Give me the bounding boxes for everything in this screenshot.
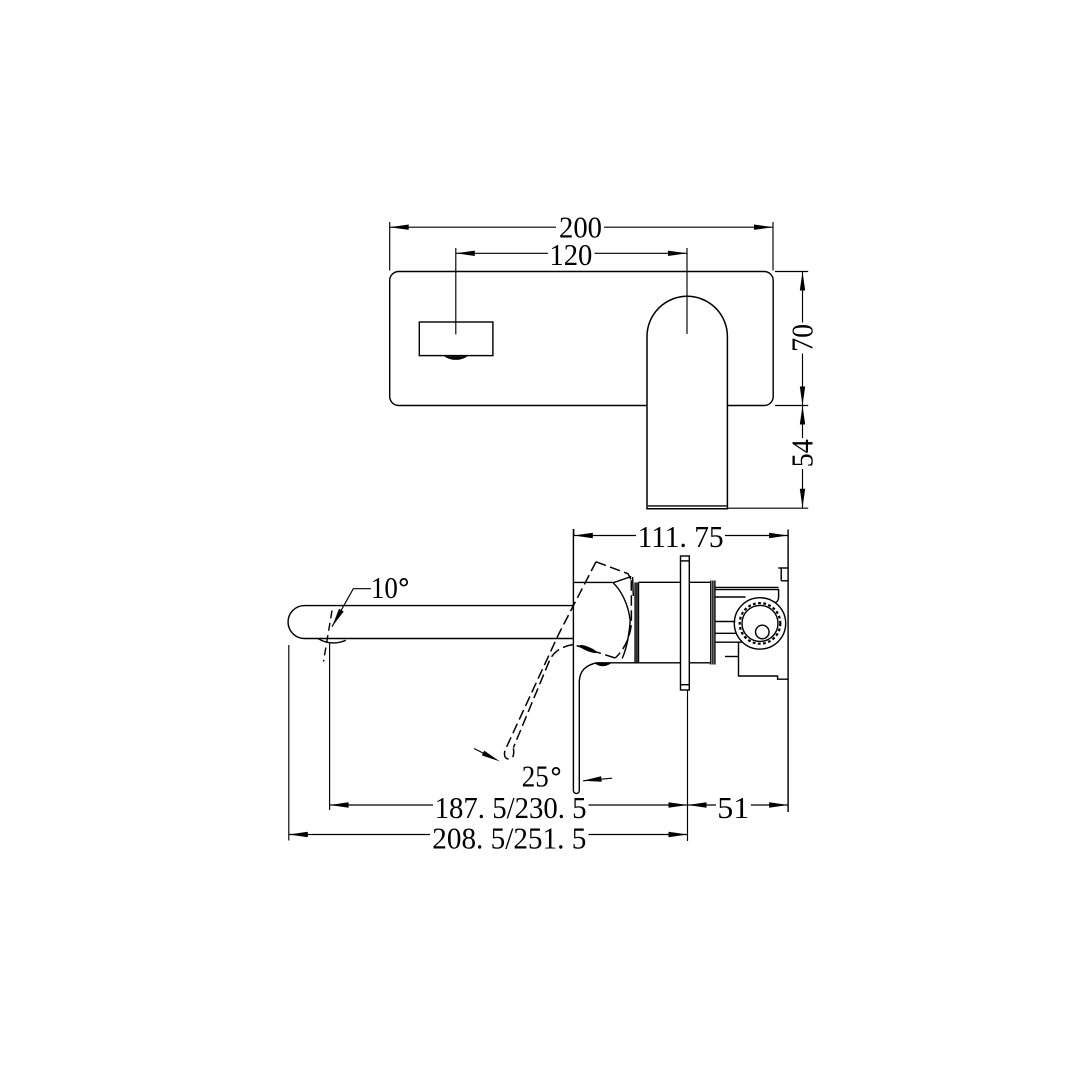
- svg-text:111. 75: 111. 75: [638, 519, 724, 554]
- svg-text:25: 25: [522, 759, 549, 794]
- svg-text:10: 10: [371, 570, 398, 605]
- svg-text:70: 70: [784, 324, 819, 352]
- svg-text:208. 5/251. 5: 208. 5/251. 5: [432, 821, 586, 856]
- svg-text:120: 120: [549, 237, 592, 272]
- svg-text:51: 51: [717, 790, 749, 825]
- svg-text:54: 54: [784, 439, 819, 467]
